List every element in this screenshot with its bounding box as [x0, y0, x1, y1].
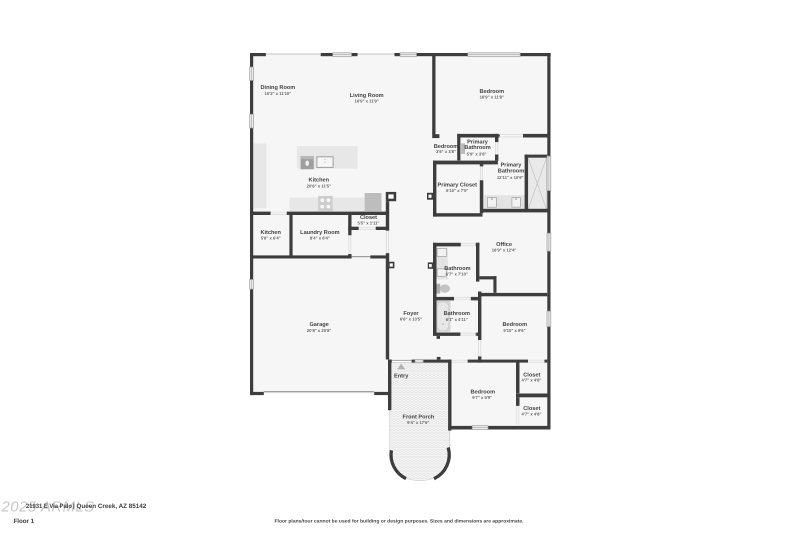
svg-text:3'6" x 3'8": 3'6" x 3'8": [436, 149, 456, 154]
svg-text:21931 E Via Palo: 21931 E Via Palo: [26, 503, 72, 510]
svg-text:20'6" x 11'5": 20'6" x 11'5": [307, 183, 331, 188]
svg-text:20'8" x 20'8": 20'8" x 20'8": [307, 328, 332, 333]
svg-text:5'9" x 3'8": 5'9" x 3'8": [467, 151, 487, 156]
svg-text:4'7" x 4'8": 4'7" x 4'8": [522, 412, 542, 417]
svg-text:6'6" x 13'5": 6'6" x 13'5": [400, 317, 422, 322]
svg-text:6'1" x 4'11": 6'1" x 4'11": [446, 317, 468, 322]
svg-text:5'5" x 1'11": 5'5" x 1'11": [357, 220, 379, 225]
svg-text:Floor plans/tour cannot be use: Floor plans/tour cannot be used for buil…: [275, 519, 524, 524]
svg-text:16'9" x 12'4": 16'9" x 12'4": [492, 248, 517, 253]
svg-text:9'10" x 9'6": 9'10" x 9'6": [503, 328, 525, 333]
svg-text:8'4" x 6'4": 8'4" x 6'4": [310, 235, 330, 240]
svg-text:Entry: Entry: [394, 373, 409, 379]
svg-text:Bathroom: Bathroom: [464, 144, 490, 151]
svg-text:| Queen Creek, AZ 85142: | Queen Creek, AZ 85142: [73, 503, 147, 510]
svg-text:16'9" x 11'9": 16'9" x 11'9": [355, 99, 379, 104]
svg-text:12'11" x 10'9": 12'11" x 10'9": [497, 175, 524, 180]
svg-text:9'4" x 17'6": 9'4" x 17'6": [407, 420, 429, 425]
svg-text:9'7" x 9'9": 9'7" x 9'9": [472, 395, 492, 400]
svg-text:Bathroom: Bathroom: [498, 167, 524, 174]
svg-text:5'6" x 6'4": 5'6" x 6'4": [261, 235, 281, 240]
svg-text:Floor 1: Floor 1: [14, 518, 35, 525]
svg-text:6'7" x 7'10": 6'7" x 7'10": [446, 272, 468, 277]
svg-text:10'2" x 11'10": 10'2" x 11'10": [265, 91, 292, 96]
svg-text:16'9" x 11'8": 16'9" x 11'8": [480, 95, 504, 100]
svg-text:6'10" x 7'5": 6'10" x 7'5": [446, 188, 468, 193]
svg-text:4'7" x 4'8": 4'7" x 4'8": [522, 378, 542, 383]
